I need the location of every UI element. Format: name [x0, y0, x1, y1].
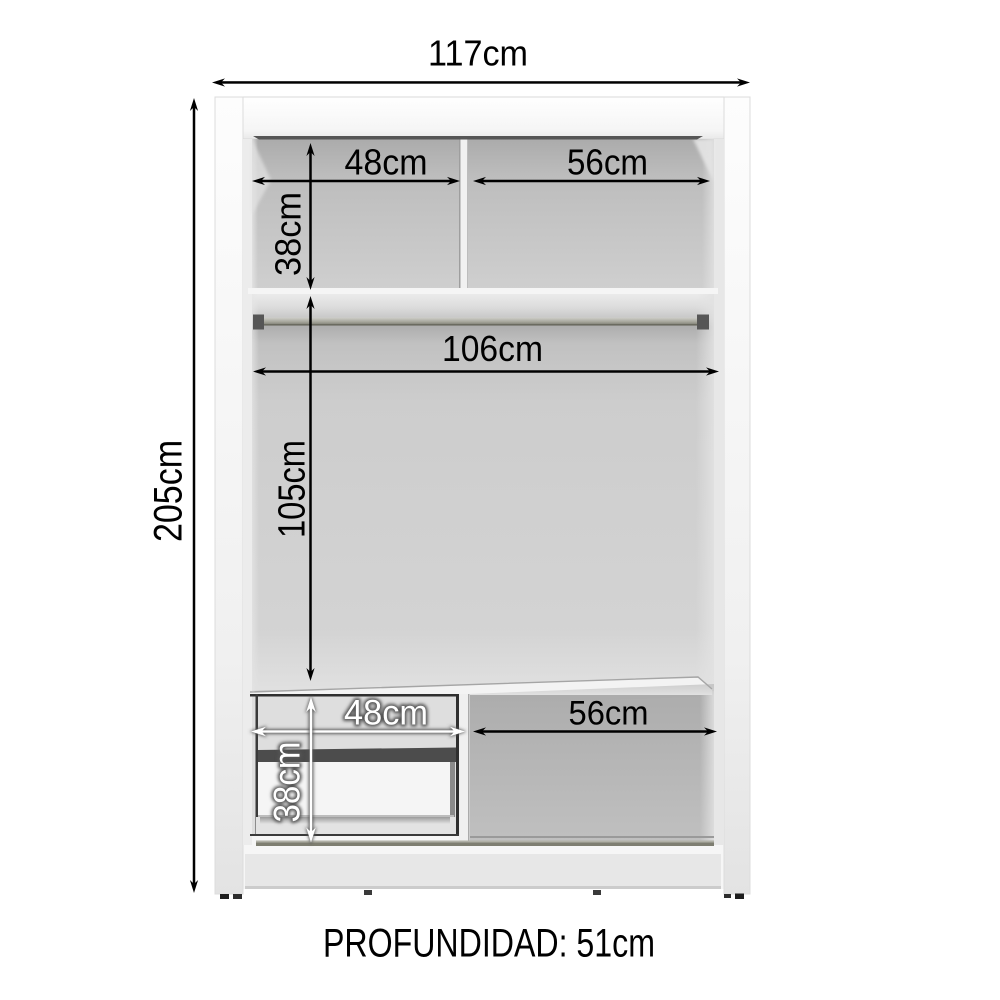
svg-text:48cm: 48cm — [345, 142, 428, 183]
svg-text:205cm: 205cm — [147, 440, 191, 542]
svg-text:PROFUNDIDAD: 51cm: PROFUNDIDAD: 51cm — [323, 922, 655, 966]
svg-text:56cm: 56cm — [567, 142, 648, 183]
svg-text:48cm: 48cm — [344, 694, 428, 733]
svg-text:117cm: 117cm — [428, 33, 528, 74]
svg-text:56cm: 56cm — [569, 695, 649, 733]
svg-text:38cm: 38cm — [268, 192, 309, 276]
svg-text:106cm: 106cm — [442, 328, 543, 369]
svg-text:38cm: 38cm — [267, 742, 308, 823]
svg-text:105cm: 105cm — [272, 440, 314, 538]
